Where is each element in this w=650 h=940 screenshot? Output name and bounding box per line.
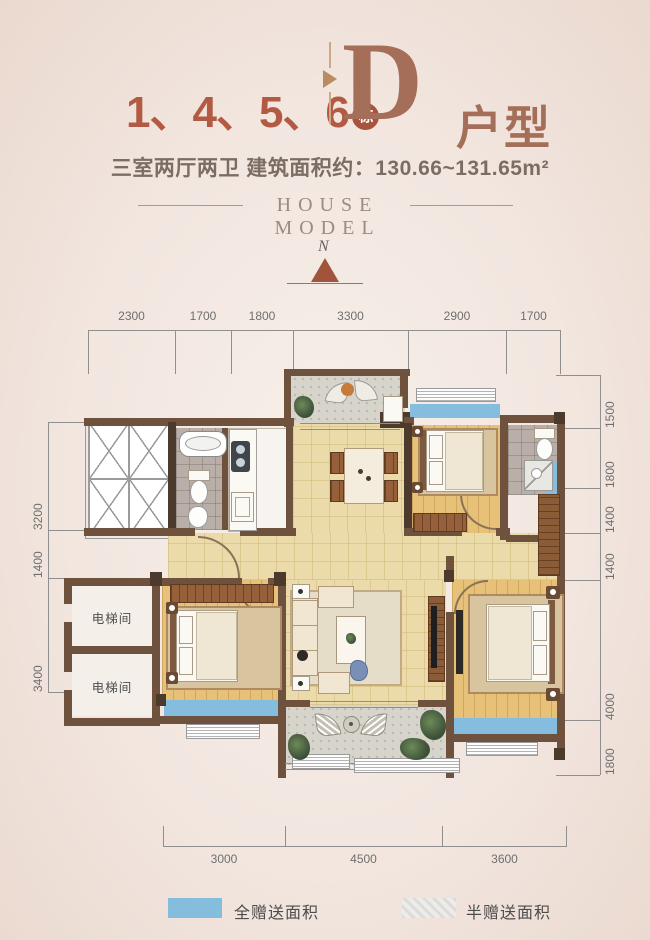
wall-column (274, 572, 286, 586)
dim-seg: 2900 (408, 303, 506, 375)
dim-label: 3600 (442, 852, 567, 866)
bed (426, 430, 484, 492)
dim-seg: 2300 (88, 303, 175, 375)
dim-label: 1400 (604, 488, 617, 533)
unit-type-letter: D (342, 26, 423, 138)
bed (486, 604, 550, 682)
dim-label: 1800 (604, 720, 617, 775)
shaft-cell (129, 423, 169, 479)
wall (64, 622, 72, 672)
window-sill (416, 388, 496, 402)
kitchen-sink (231, 492, 254, 522)
title-divider-arrow-icon (323, 70, 337, 88)
shaft-cell (89, 479, 129, 535)
dining-chair (384, 452, 398, 474)
north-arrow-icon (311, 258, 339, 282)
stove-icon (231, 441, 250, 472)
dim-seg: 1700 (175, 303, 231, 375)
nightstand (166, 602, 178, 614)
title-divider-top (329, 42, 331, 68)
title-divider-bottom (329, 92, 331, 124)
building-numbers: 1、4、5、6栋 (126, 76, 379, 140)
armchair (318, 672, 350, 694)
dim-seg: 3300 (293, 303, 408, 375)
wall (84, 418, 294, 426)
window-sill (466, 742, 538, 756)
dim-label: 1400 (31, 530, 45, 578)
dim-label: 1400 (604, 533, 617, 580)
wall (278, 700, 310, 707)
wall (286, 423, 293, 535)
building-numbers-text: 1、4、5、6 (126, 88, 349, 137)
sliding-door-terrace (310, 701, 418, 708)
elevator-label: 电梯间 (72, 608, 152, 627)
wall (500, 415, 508, 540)
tv-icon (431, 606, 437, 668)
dining-table (344, 448, 384, 504)
sofa-seat (318, 586, 354, 608)
dim-seg: 1800 (231, 303, 293, 375)
floor-lamp-icon (297, 650, 308, 661)
wall (168, 422, 176, 535)
legend-swatch-full-gift (168, 898, 222, 918)
wall (84, 528, 195, 536)
plant-icon (294, 396, 314, 418)
dining-chair (330, 480, 344, 502)
elevator-room-1: 电梯间 (72, 586, 152, 646)
wall (284, 369, 291, 427)
dim-label: 2900 (408, 309, 506, 323)
window-sill (354, 758, 460, 773)
nightstand (166, 672, 178, 684)
dim-row-top: 2300 1700 1800 3300 2900 1700 (88, 303, 561, 375)
plant-icon (420, 710, 446, 740)
wall (404, 423, 412, 535)
hall-cabinet (538, 494, 560, 576)
legend-label-full-gift: 全赠送面积 (234, 899, 319, 923)
wall-column (444, 570, 454, 582)
wall (286, 369, 410, 376)
toilet-icon (536, 438, 553, 460)
house-model-line-right (410, 205, 513, 206)
wall (418, 700, 450, 707)
dim-seg: 1700 (506, 303, 561, 375)
dim-label: 3300 (293, 309, 408, 323)
dim-label: 1700 (175, 309, 231, 323)
north-baseline (287, 283, 363, 284)
dining-chair (384, 480, 398, 502)
wardrobe (170, 584, 274, 603)
dim-row-bottom: 3000 4500 3600 (163, 832, 567, 872)
dim-seg: 3000 (163, 832, 285, 872)
gift-window-master (452, 718, 557, 734)
wall (72, 646, 152, 654)
nightstand (546, 688, 560, 701)
tv-panel (456, 610, 463, 674)
north-label: N (318, 238, 329, 256)
dim-label: 4000 (604, 580, 617, 720)
gift-window-top (410, 404, 500, 418)
legend-label-half-gift: 半赠送面积 (466, 899, 551, 923)
sofa-main (292, 598, 318, 676)
wall (64, 578, 72, 604)
wall (64, 578, 164, 586)
wall-column (150, 572, 162, 586)
shaft-cell (89, 423, 129, 479)
dim-label: 1800 (231, 309, 293, 323)
plant-icon (400, 738, 430, 760)
wall-column (554, 748, 565, 760)
house-model-line-left (138, 205, 243, 206)
shaft-cell (129, 479, 169, 535)
patio-table (341, 383, 354, 396)
dim-col-right: 1500 1800 1400 1400 4000 1800 (556, 375, 618, 775)
elevator-room-2: 电梯间 (72, 654, 152, 716)
elevator-label: 电梯间 (72, 677, 152, 696)
dim-label: 3000 (163, 852, 285, 866)
wall-column (554, 412, 565, 424)
dim-label: 4500 (285, 852, 442, 866)
dim-seg: 4500 (285, 832, 442, 872)
side-table (292, 584, 310, 599)
wall (64, 718, 160, 726)
bidet-icon (188, 506, 208, 528)
toilet-icon (190, 480, 208, 504)
wall-column (156, 694, 166, 706)
stairwell-core (88, 422, 170, 536)
terrace-table (343, 716, 360, 733)
pouf (350, 660, 368, 681)
flyer-page: 1、4、5、6栋 D 户型 三室两厅两卫 建筑面积约：130.66~131.65… (0, 0, 650, 940)
unit-subtitle: 三室两厅两卫 建筑面积约：130.66~131.65m² (60, 152, 600, 182)
shower-icon (524, 460, 553, 491)
nightstand (412, 426, 423, 437)
plant-icon (288, 734, 310, 760)
sliding-door-patio (300, 423, 400, 430)
gift-window-bedroom-left (164, 700, 278, 716)
dim-label: 1700 (506, 309, 561, 323)
window-sill (186, 724, 260, 739)
dim-label: 1500 (604, 375, 617, 428)
nightstand (412, 482, 423, 493)
wall (448, 734, 565, 742)
dim-seg: 3600 (442, 832, 567, 872)
unit-type-suffix: 户型 (456, 92, 552, 158)
dining-chair (330, 452, 344, 474)
bed (176, 610, 238, 682)
side-table (292, 676, 310, 691)
dim-label: 3200 (31, 422, 45, 530)
wall (158, 716, 282, 724)
legend-swatch-half-gift (402, 898, 456, 918)
house-model-label: HOUSE MODEL (250, 194, 405, 240)
patio-mat (383, 396, 403, 422)
nightstand (546, 586, 560, 599)
bathtub (179, 431, 227, 457)
dim-label: 3400 (31, 578, 45, 692)
dim-label: 1800 (604, 428, 617, 488)
coffee-table (336, 616, 366, 664)
dim-label: 2300 (88, 309, 175, 323)
wardrobe (413, 513, 467, 532)
